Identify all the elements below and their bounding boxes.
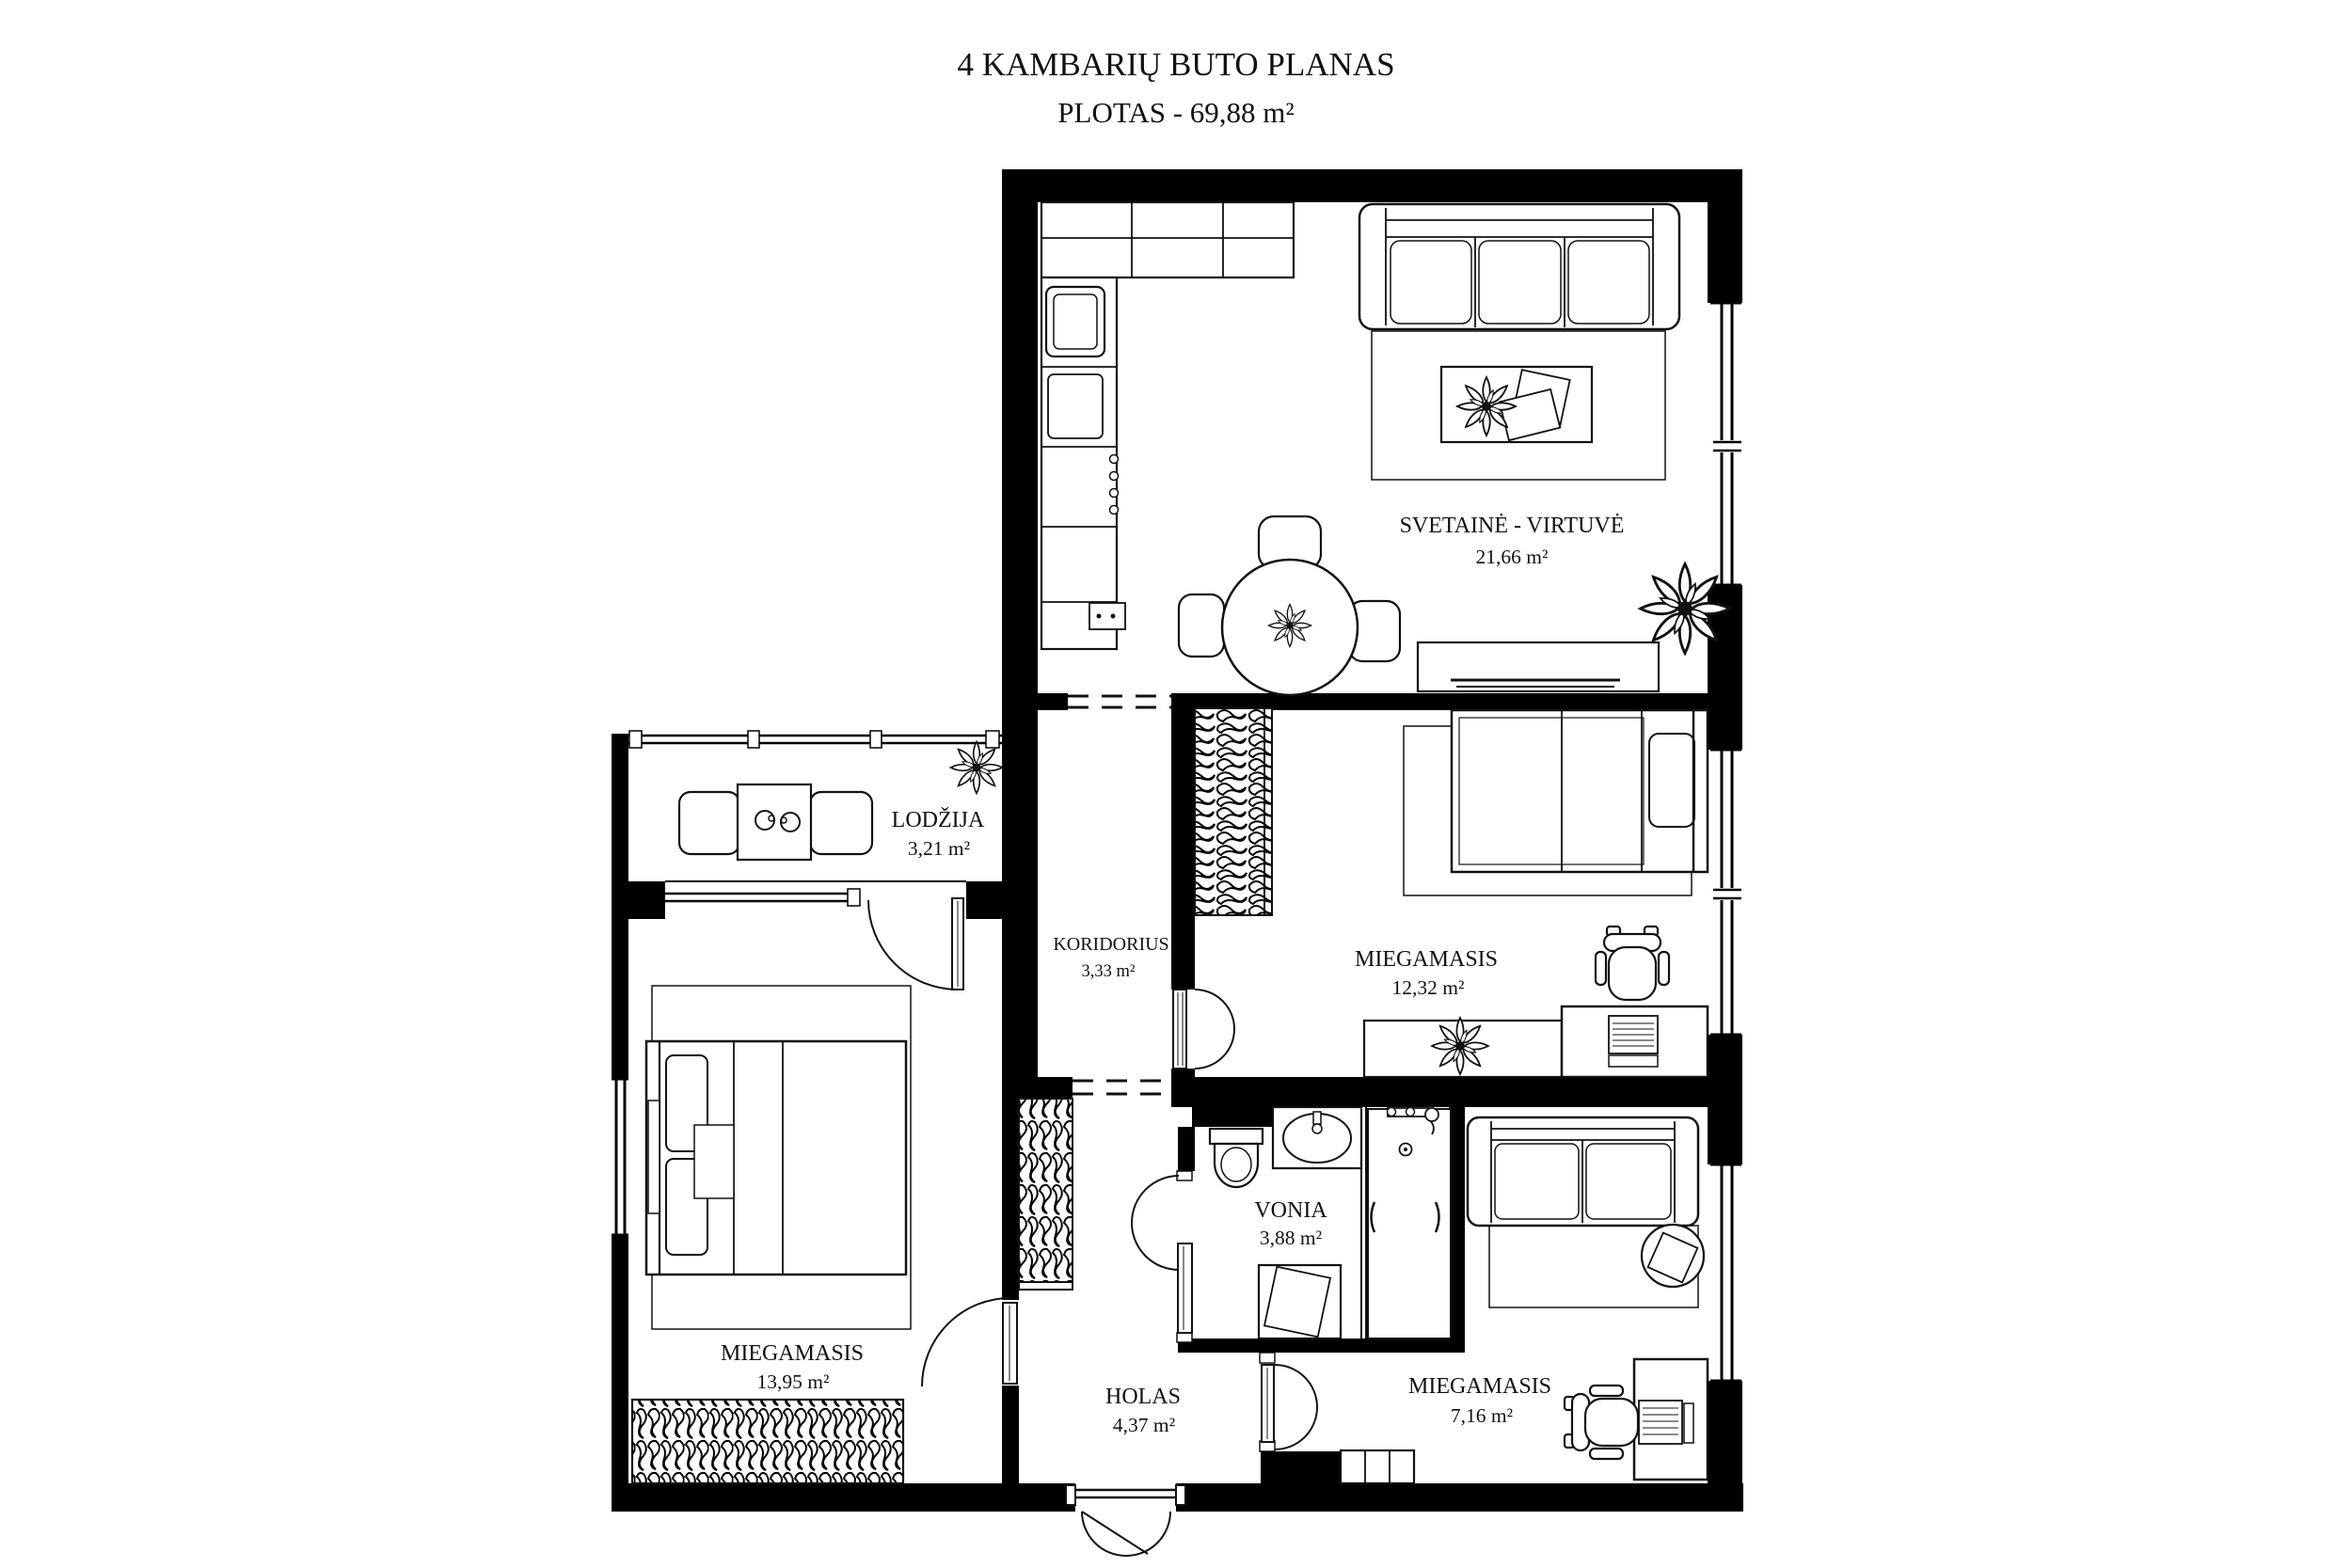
plan-subtitle: PLOTAS - 69,88 m² (1057, 96, 1294, 129)
window-loggia-top (628, 731, 1002, 748)
shoe-cabinet (1341, 1450, 1414, 1483)
wall-loggia-bottom-right (966, 881, 1004, 919)
bed-single (1452, 710, 1708, 872)
wall-bath-bottom (1178, 1338, 1465, 1353)
window-bedroom-small (1710, 1164, 1741, 1381)
cup (781, 813, 800, 832)
wall-top (1002, 169, 1742, 202)
room-area-hall: 4,37 m² (1113, 1414, 1175, 1436)
plant-icon (1432, 1018, 1488, 1074)
room-area-bedroom-left: 13,95 m² (757, 1370, 830, 1393)
wardrobe (1195, 708, 1272, 915)
bedroom-left-furniture (632, 986, 911, 1483)
wall-loggia-bottom-left (612, 881, 665, 919)
door-bedroom-small (1260, 1353, 1317, 1451)
chair (810, 792, 872, 854)
shower (1361, 1107, 1451, 1338)
office-chair (1596, 927, 1669, 1000)
washing-machine (1259, 1265, 1341, 1338)
wardrobe (1019, 1099, 1073, 1282)
radiator (632, 1400, 903, 1483)
sink (1273, 1107, 1361, 1168)
window-living-right (1710, 303, 1741, 585)
room-label-bedroom-right: MIEGAMASIS (1355, 947, 1498, 972)
room-label-bathroom: VONIA (1254, 1198, 1327, 1223)
wall-left-bedroom-b (612, 1235, 628, 1483)
wall-bath-top (1192, 1107, 1272, 1127)
wall-right-1 (1708, 202, 1742, 303)
wall-spine-low2 (1002, 1386, 1019, 1483)
chair (679, 792, 739, 854)
room-area-loggia: 3,21 m² (908, 837, 970, 860)
wall-stub-corridor (1038, 693, 1068, 710)
bed-double (646, 1041, 906, 1275)
room-area-bedroom-small: 7,16 m² (1451, 1404, 1513, 1427)
coffee-table (1441, 367, 1592, 442)
wall-left-bedroom-a (612, 919, 628, 1079)
bedroom-right-furniture (1195, 708, 1708, 1077)
room-area-corridor: 3,33 m² (1082, 962, 1136, 981)
office-chair (1565, 1386, 1638, 1459)
room-area-living: 21,66 m² (1476, 546, 1549, 568)
wall-hall-stub-bottom (1261, 1451, 1341, 1483)
side-table (1642, 1225, 1704, 1287)
wall-bath-left-top (1178, 1127, 1195, 1171)
toilet (1210, 1129, 1263, 1187)
wall-spine-low (1002, 1099, 1019, 1300)
room-label-bedroom-left: MIEGAMASIS (721, 1341, 864, 1366)
room-label-loggia: LODŽIJA (892, 808, 985, 832)
floor-plan: 4 KAMBARIŲ BUTO PLANAS PLOTAS - 69,88 m²… (0, 0, 2352, 1568)
laptop (1639, 1401, 1682, 1444)
floor-plan-canvas: 4 KAMBARIŲ BUTO PLANAS PLOTAS - 69,88 m²… (0, 0, 2352, 1568)
wall-mid-band (1171, 1077, 1709, 1107)
opening-corridor-hall (1073, 1081, 1171, 1094)
plant-icon (1457, 377, 1516, 436)
sofa-living (1359, 204, 1679, 329)
room-label-bedroom-small: MIEGAMASIS (1408, 1374, 1551, 1399)
window-bedroom-right (1710, 750, 1741, 1035)
bathroom-fixtures (1210, 1107, 1451, 1338)
wall-right-4 (1708, 1381, 1742, 1512)
plant-icon (1641, 564, 1730, 654)
wall-corridor-right (1171, 710, 1195, 990)
room-label-corridor: KORIDORIUS (1053, 934, 1168, 955)
doors (868, 898, 1317, 1556)
door-bathroom (1132, 1171, 1192, 1342)
window-bedroom-left (612, 1079, 628, 1235)
door-entrance (1066, 1485, 1185, 1556)
opening-living-corridor (1068, 696, 1171, 707)
desk (1562, 1006, 1708, 1077)
sofa-small (1468, 1117, 1698, 1226)
room-label-hall: HOLAS (1105, 1385, 1181, 1409)
window-loggia-bottom (665, 881, 966, 906)
door-bedroom-left (922, 1298, 1017, 1386)
door-bedroom-right (1173, 990, 1234, 1069)
tv-stand (1418, 642, 1659, 691)
wall-corridor-bottom (1002, 1077, 1073, 1099)
kitchen-oven (1048, 374, 1103, 438)
wall-right-3 (1708, 1035, 1742, 1164)
desk (1634, 1359, 1708, 1480)
hall-furniture (1019, 1099, 1073, 1290)
room-area-bedroom-right: 12,32 m² (1392, 976, 1465, 999)
wall-spine-upper (1002, 202, 1038, 710)
plant-icon (951, 742, 1003, 794)
dining-chair (1179, 594, 1224, 657)
wall-bottom-right (1176, 1483, 1743, 1512)
door-loggia (868, 898, 963, 990)
wall-spine-mid (1002, 710, 1038, 1099)
dining-set (1179, 516, 1400, 695)
plant-icon (1269, 605, 1311, 647)
wall-openings (1068, 696, 1171, 1094)
room-area-bathroom: 3,88 m² (1260, 1227, 1322, 1249)
wall-bottom-left (612, 1483, 1075, 1512)
cup (755, 811, 774, 830)
plan-title: 4 KAMBARIŲ BUTO PLANAS (957, 46, 1394, 83)
room-label-living: SVETAINĖ - VIRTUVĖ (1400, 514, 1625, 538)
